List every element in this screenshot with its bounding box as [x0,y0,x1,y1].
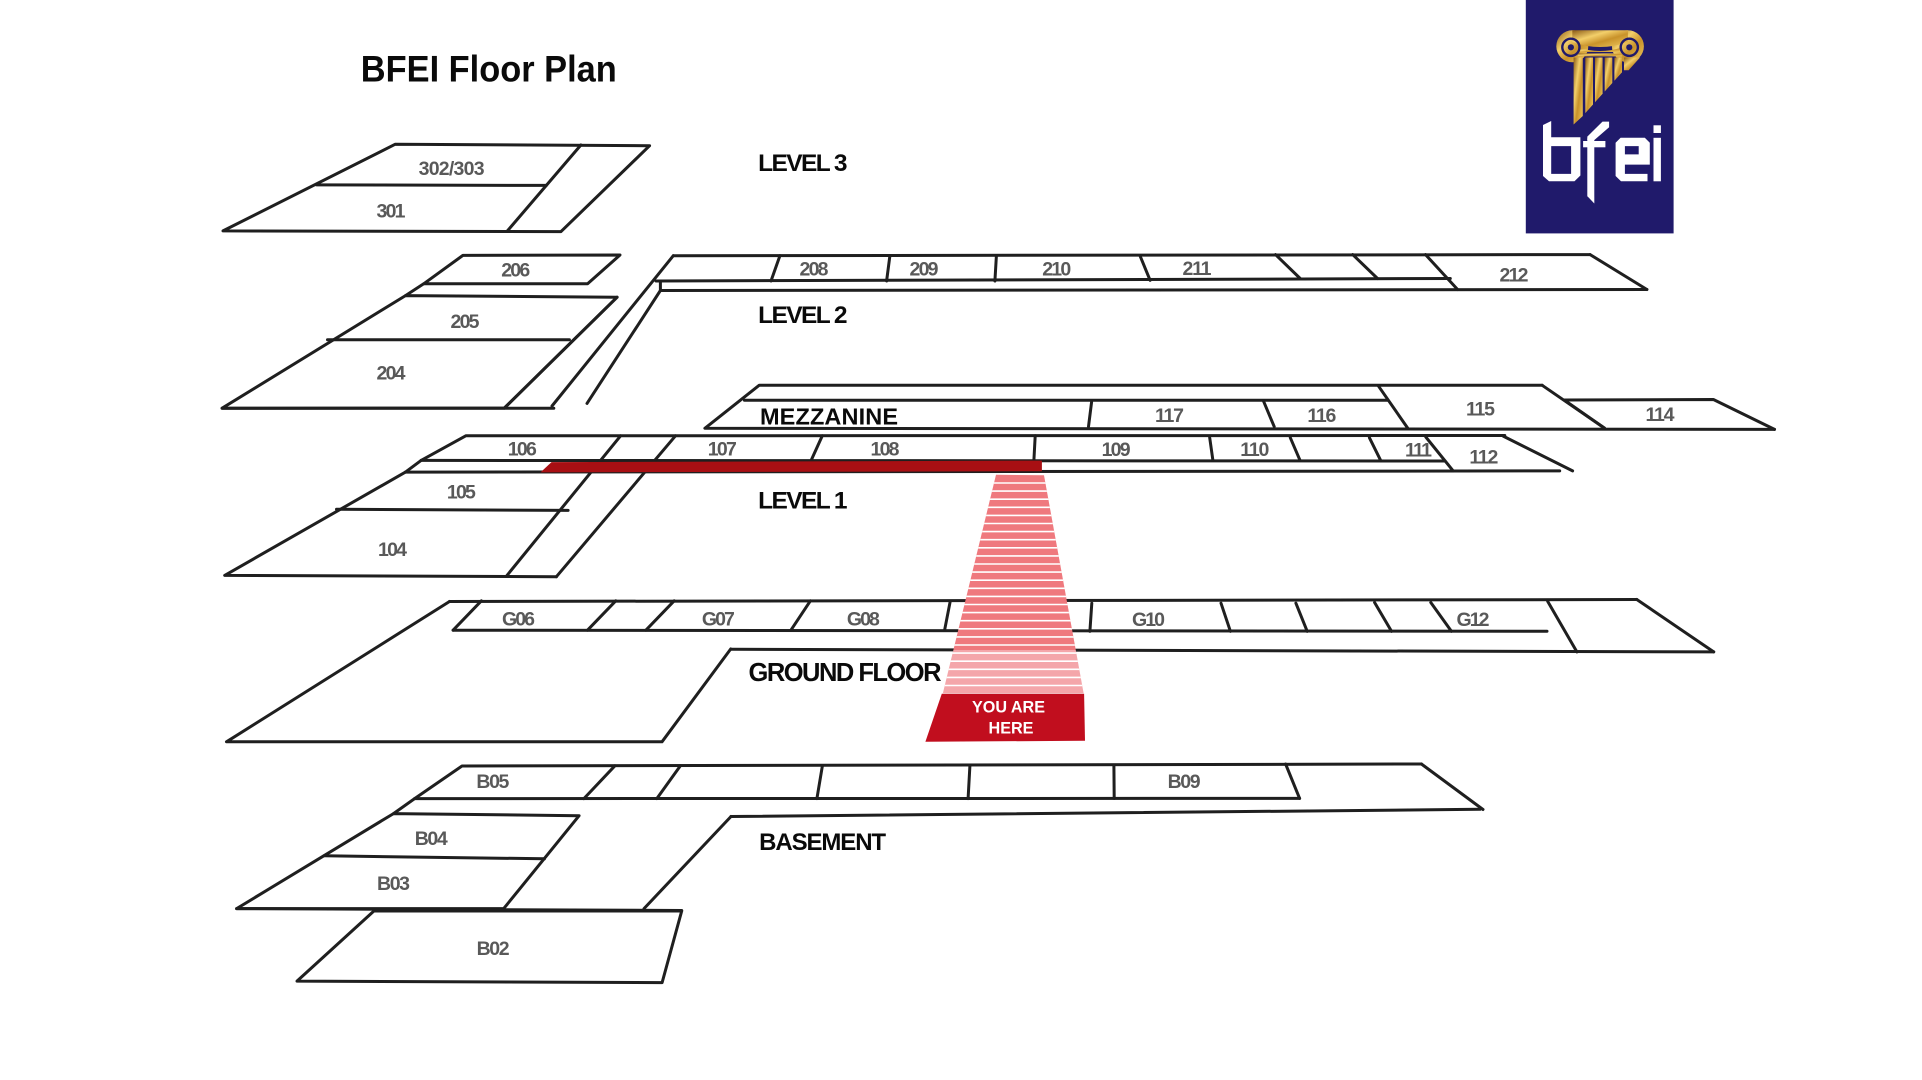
svg-text:G08: G08 [847,609,880,631]
svg-text:G10: G10 [1132,609,1165,631]
svg-text:BFEI Floor Plan: BFEI Floor Plan [361,48,617,90]
svg-text:YOU ARE: YOU ARE [972,699,1045,717]
svg-text:204: 204 [377,363,406,385]
svg-text:302/303: 302/303 [419,158,485,180]
svg-text:208: 208 [800,258,829,280]
svg-text:209: 209 [910,258,939,280]
svg-text:114: 114 [1646,404,1675,426]
svg-text:117: 117 [1155,405,1184,427]
svg-text:B02: B02 [477,938,510,960]
svg-text:115: 115 [1466,399,1495,421]
svg-text:107: 107 [708,439,737,461]
svg-text:105: 105 [447,482,476,504]
svg-text:LEVEL 2: LEVEL 2 [758,302,847,329]
svg-text:205: 205 [451,311,480,333]
svg-text:111: 111 [1405,440,1432,462]
svg-text:B04: B04 [415,828,448,850]
svg-text:301: 301 [377,201,406,223]
svg-text:B03: B03 [377,873,410,895]
svg-text:210: 210 [1042,258,1071,280]
svg-text:212: 212 [1500,265,1529,287]
svg-text:104: 104 [378,539,407,561]
svg-text:112: 112 [1469,447,1498,469]
svg-text:G06: G06 [502,609,535,631]
svg-text:211: 211 [1183,258,1212,280]
svg-text:108: 108 [871,439,900,461]
svg-text:G12: G12 [1457,609,1490,631]
svg-text:MEZZANINE: MEZZANINE [760,404,898,430]
svg-text:GROUND FLOOR: GROUND FLOOR [749,659,942,687]
svg-text:HERE: HERE [989,720,1034,738]
svg-text:BASEMENT: BASEMENT [759,829,886,856]
svg-text:206: 206 [501,260,530,282]
svg-text:110: 110 [1240,439,1269,461]
svg-text:106: 106 [508,439,537,461]
svg-text:LEVEL 1: LEVEL 1 [758,488,847,515]
svg-text:G07: G07 [702,609,735,631]
svg-text:109: 109 [1102,439,1131,461]
svg-text:B09: B09 [1168,771,1201,793]
svg-text:B05: B05 [476,771,509,793]
svg-text:LEVEL 3: LEVEL 3 [758,150,847,177]
svg-text:116: 116 [1307,405,1336,427]
